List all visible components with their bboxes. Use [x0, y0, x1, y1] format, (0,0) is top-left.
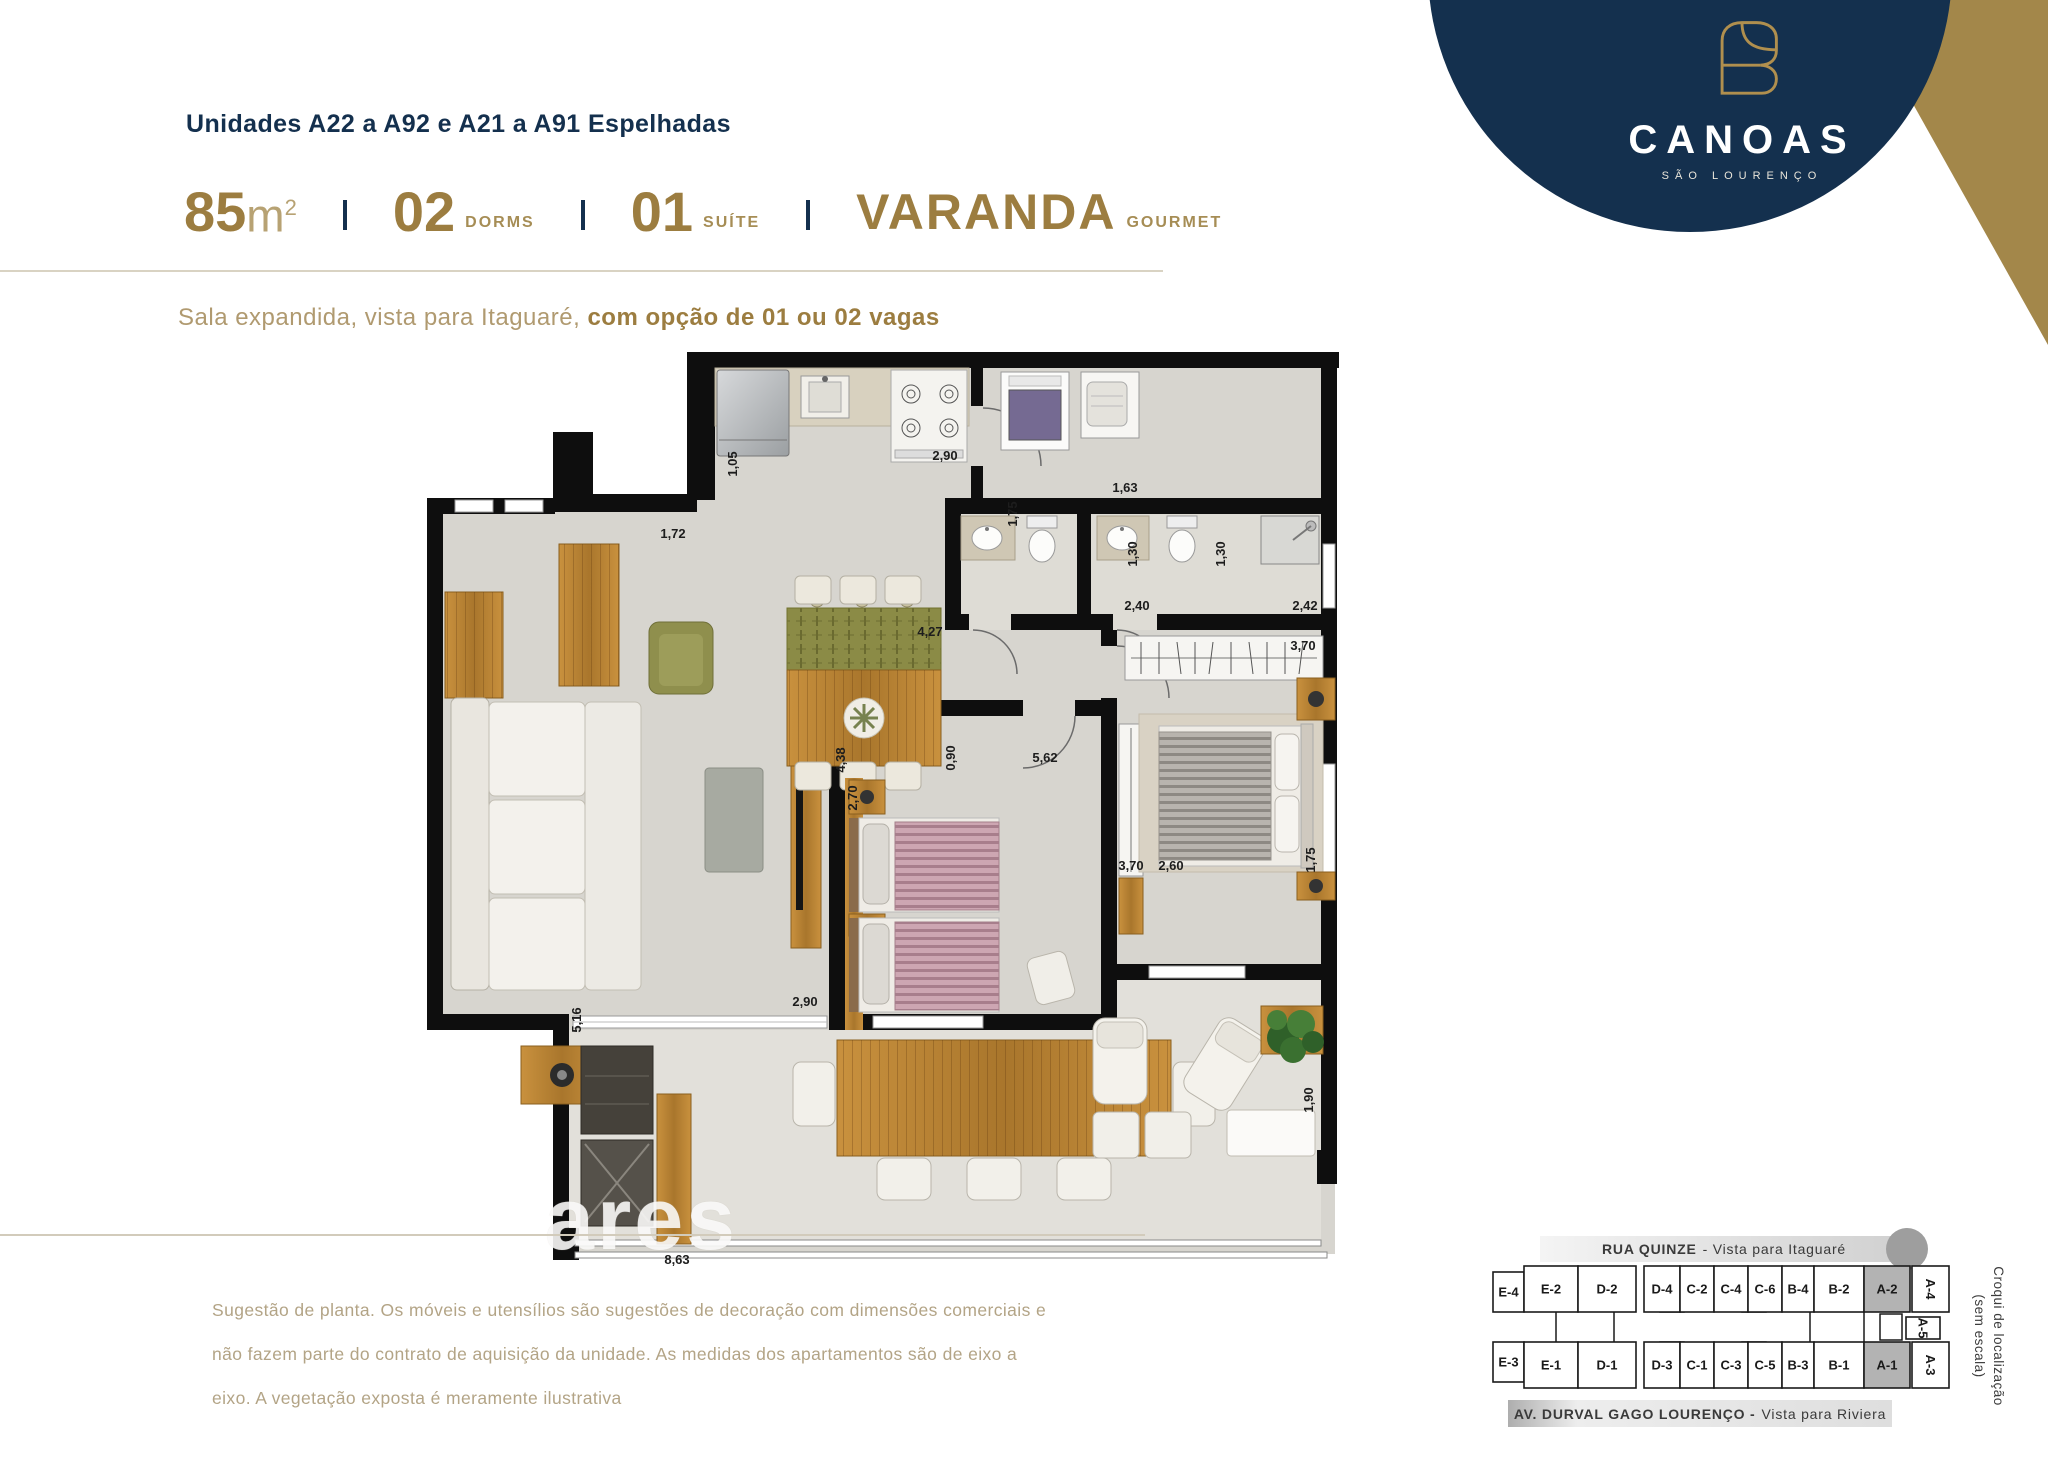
croqui-unit-label: D-4 [1652, 1282, 1674, 1297]
croqui-side-note: Croqui de localização (sem escala) [1962, 1262, 2008, 1410]
croqui-unit-label: B-2 [1829, 1282, 1850, 1297]
page-title: Unidades A22 a A92 e A21 a A91 Espelhada… [186, 110, 731, 139]
croqui-unit-label: C-4 [1721, 1282, 1743, 1297]
spec-value: 85 [184, 184, 246, 240]
spec-unit: m2 [246, 183, 297, 240]
dimension-label: 2,70 [845, 785, 860, 810]
croqui-unit-label: E-4 [1498, 1285, 1519, 1300]
tv-rack [791, 766, 821, 948]
croqui-unit-label: D-1 [1597, 1358, 1618, 1373]
disclaimer-line: Sugestão de planta. Os móveis e utensíli… [212, 1288, 1132, 1332]
croqui-unit-label: A-4 [1923, 1279, 1938, 1301]
croqui-unit-label: A-3 [1923, 1355, 1938, 1376]
brand-subname: SÃO LOURENÇO [1552, 170, 1932, 182]
dimension-label: 2,90 [932, 448, 957, 463]
spec-item: 01SUÍTE [631, 184, 760, 240]
croqui-unit-label: B-1 [1829, 1358, 1850, 1373]
croqui-unit-label: E-2 [1541, 1282, 1561, 1297]
dimension-label: 4,27 [917, 624, 942, 639]
divider-line-bottom [0, 1234, 1145, 1236]
fridge [717, 370, 789, 456]
croqui-unit-label: E-1 [1541, 1358, 1561, 1373]
side-note-line2: (sem escala) [1970, 1262, 1989, 1410]
croqui-unit-label: E-3 [1498, 1355, 1518, 1370]
croqui-street-bottom: AV. DURVAL GAGO LOURENÇO - Vista para Ri… [1508, 1400, 1892, 1427]
croqui-street-top: RUA QUINZE - Vista para Itaguaré [1540, 1236, 1908, 1262]
croqui-unit-label: D-2 [1597, 1282, 1618, 1297]
subtitle-regular: Sala expandida, vista para Itaguaré, [178, 304, 587, 331]
croqui-unit-label: B-3 [1788, 1358, 1809, 1373]
spec-label: DORMS [465, 214, 535, 240]
toilet [1029, 530, 1055, 562]
disclaimer-line: eixo. A vegetação exposta é meramente il… [212, 1376, 1132, 1420]
brand-panel: CANOAS SÃO LOURENÇO [1552, 0, 1932, 230]
spec-label: SUÍTE [703, 214, 760, 240]
street-bottom-note: Vista para Riviera [1762, 1406, 1887, 1422]
spec-row: 85m202DORMS01SUÍTEVARANDAGOURMET [184, 178, 1222, 240]
canoas-logo-icon [1704, 16, 1780, 98]
dimension-label: 2,40 [1124, 598, 1149, 613]
dimension-label: 1,30 [1125, 541, 1140, 566]
dimension-label: 5,16 [569, 1007, 584, 1032]
side-note-line1: Croqui de localização [1989, 1262, 2008, 1410]
dimension-label: 1,90 [1301, 1087, 1316, 1112]
street-bottom-name: AV. DURVAL GAGO LOURENÇO - [1514, 1406, 1756, 1422]
dimension-label: 1,72 [660, 526, 685, 541]
dimension-label: 5,62 [1032, 750, 1057, 765]
divider-line-top [0, 270, 1163, 272]
spec-value: VARANDA [856, 184, 1116, 240]
dimension-label: 1,75 [1005, 501, 1020, 526]
croqui-unit-label: A-5 [1916, 1318, 1931, 1339]
spec-item: 85m2 [184, 183, 297, 240]
subtitle-bold: com opção de 01 ou 02 vagas [587, 304, 939, 331]
croqui-unit-label: C-2 [1687, 1282, 1708, 1297]
croqui-unit-label: C-3 [1721, 1358, 1742, 1373]
dimension-label: 0,90 [943, 745, 958, 770]
dimension-label: 2,60 [1158, 858, 1183, 873]
spec-divider [806, 200, 810, 230]
tv [796, 788, 803, 910]
croqui-unit-label: D-3 [1652, 1358, 1673, 1373]
toilet [1169, 530, 1195, 562]
disclaimer-line: não fazem parte do contrato de aquisição… [212, 1332, 1132, 1376]
croqui-unit-label: C-6 [1755, 1282, 1776, 1297]
spec-item: 02DORMS [393, 184, 535, 240]
street-top-note: - Vista para Itaguaré [1703, 1241, 1846, 1257]
page: CANOAS SÃO LOURENÇO Unidades A22 a A92 e… [0, 0, 2048, 1461]
dimension-label: 1,05 [725, 451, 740, 476]
croqui-unit-label: C-5 [1755, 1358, 1776, 1373]
dining-area [787, 576, 941, 790]
dimension-label: 2,42 [1292, 598, 1317, 613]
croqui-unit-label: C-1 [1687, 1358, 1708, 1373]
floor-plan: 1,721,052,901,751,631,301,302,402,423,70… [425, 348, 1345, 1278]
floor-plan-drawing: 1,721,052,901,751,631,301,302,402,423,70… [425, 348, 1345, 1278]
watermark: ares [545, 1168, 738, 1270]
brand-name: CANOAS [1552, 118, 1932, 163]
gourmet-cabinet [581, 1046, 653, 1134]
subtitle: Sala expandida, vista para Itaguaré, com… [178, 304, 940, 332]
spec-value: 02 [393, 184, 455, 240]
dimension-label: 3,70 [1118, 858, 1143, 873]
croqui-unit-label: B-4 [1788, 1282, 1810, 1297]
croqui-unit-label: A-2 [1877, 1282, 1898, 1297]
spec-divider [343, 200, 347, 230]
dining-rug [787, 608, 941, 670]
dimension-label: 2,90 [792, 994, 817, 1009]
spec-value: 01 [631, 184, 693, 240]
dimension-label: 4,38 [833, 747, 848, 772]
dimension-label: 1,63 [1112, 480, 1137, 495]
dimension-label: 3,70 [1290, 638, 1315, 653]
spec-label: GOURMET [1126, 214, 1222, 240]
street-top-name: RUA QUINZE [1602, 1241, 1697, 1257]
spec-divider [581, 200, 585, 230]
spec-item: VARANDAGOURMET [856, 184, 1222, 240]
croqui-building: E-4E-2D-2D-4C-2C-4C-6B-4B-2A-2A-4A-5E-3E… [1492, 1264, 1952, 1390]
dimension-label: 1,30 [1213, 541, 1228, 566]
dimension-label: 1,75 [1303, 847, 1318, 872]
sofa [451, 698, 641, 990]
disclaimer: Sugestão de planta. Os móveis e utensíli… [212, 1288, 1132, 1420]
coffee-table [705, 768, 763, 872]
croqui-unit-label: A-1 [1877, 1358, 1898, 1373]
